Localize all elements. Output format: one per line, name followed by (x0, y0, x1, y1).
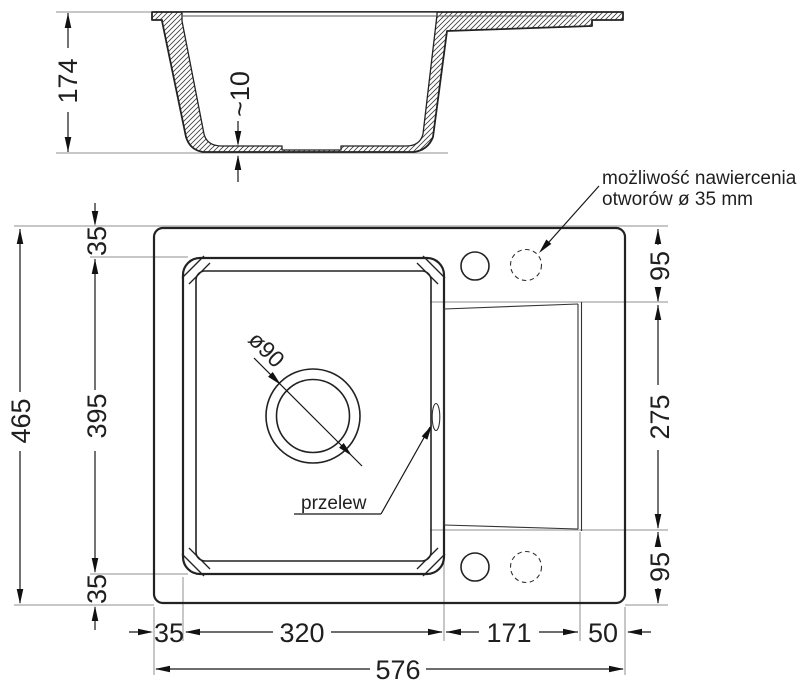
bowl-corner-chamfers (182, 256, 445, 576)
dim-arrow (92, 606, 99, 621)
dim-bowl-offset-bottom: 35 (82, 574, 112, 630)
dim-drainer-depth: 275 (645, 305, 675, 529)
faucet-hole-bottom (461, 553, 489, 581)
drainer-board (444, 302, 582, 531)
dim-arrow (155, 666, 170, 673)
dim-arrow (138, 629, 153, 636)
technical-drawing-canvas: 174 ~10 (0, 0, 800, 691)
dim-drainer-width: 171 (446, 618, 578, 648)
dim-bowl-offset-bottom-label: 35 (82, 574, 112, 604)
dim-overall-width-label: 576 (375, 655, 420, 685)
overflow-label: przelew (301, 493, 367, 514)
dim-arrow (655, 589, 662, 604)
dim-overall-depth: 465 (6, 229, 36, 604)
dim-arrow (446, 629, 461, 636)
dim-drainer-offset-bottom: 95 (645, 532, 675, 604)
sink-technical-drawing: 174 ~10 (0, 0, 800, 691)
dim-arrow (428, 629, 443, 636)
dim-bowl-width-label: 320 (279, 618, 324, 648)
drill-note-line1: możliwość nawiercenia (602, 168, 797, 189)
section-bowl-cavity (182, 12, 437, 150)
dim-drainer-width-label: 171 (486, 618, 531, 648)
drain-hole-circle (277, 380, 350, 453)
dim-bowl-width: 320 (185, 618, 443, 648)
sink-outline (154, 228, 625, 603)
optional-hole-bottom-dashed (511, 552, 542, 583)
drill-note: możliwość nawiercenia otworów ø 35 mm (537, 168, 797, 255)
dim-drainer-offset-bottom-label: 95 (645, 552, 675, 582)
faucet-hole-top (461, 252, 489, 280)
dim-bowl-offset-top-label: 35 (82, 226, 112, 256)
dim-overall-width: 576 (155, 655, 624, 685)
bowl-outer-rim (183, 258, 444, 574)
dim-drainer-offset-top-label: 95 (645, 251, 675, 281)
dim-section-depth: 174 (53, 13, 83, 152)
bowl-inner-rim (196, 271, 431, 561)
drill-note-line2: otworów ø 35 mm (602, 189, 753, 210)
dim-arrow (185, 629, 200, 636)
dim-bowl-depth-label: 395 (82, 393, 112, 438)
dim-arrow (609, 666, 624, 673)
dim-floor-thickness-label: ~10 (225, 71, 255, 117)
dim-bowl-offset-left-label: 35 (154, 618, 184, 648)
dim-arrow (17, 229, 24, 244)
dim-drainer-offset-top: 95 (645, 229, 675, 302)
dim-arrow (65, 137, 72, 152)
dim-section-depth-label: 174 (53, 58, 83, 103)
dim-arrow (627, 629, 642, 636)
dim-arrow (655, 229, 662, 244)
dim-drainer-depth-label: 275 (645, 394, 675, 439)
optional-hole-top-dashed (511, 250, 542, 281)
dim-arrow (92, 211, 99, 226)
dim-arrow (92, 558, 99, 573)
dim-arrow (235, 155, 242, 170)
dim-drainer-offset-right-label: 50 (588, 618, 618, 648)
overflow-annotation: przelew (294, 423, 435, 514)
dim-arrow (655, 532, 662, 547)
dim-bowl-offset-left: 35 (129, 618, 184, 648)
dim-overall-depth-label: 465 (6, 398, 36, 443)
dim-drain-diameter-label: ø90 (243, 326, 289, 372)
section-view: 174 ~10 (53, 12, 623, 182)
plan-view: ø90 przelew możliwość nawiercenia (6, 168, 797, 685)
dim-bowl-offset-top: 35 (82, 203, 112, 256)
dim-arrow (17, 589, 24, 604)
dim-arrow (65, 13, 72, 28)
dim-arrow (655, 514, 662, 529)
overflow-ellipse (432, 404, 440, 431)
dim-bowl-depth: 395 (82, 259, 112, 573)
dim-arrow (563, 629, 578, 636)
dim-arrow (655, 305, 662, 320)
dim-drainer-offset-right: 50 (588, 618, 651, 648)
dim-arrow (655, 287, 662, 302)
dim-arrow (92, 259, 99, 274)
